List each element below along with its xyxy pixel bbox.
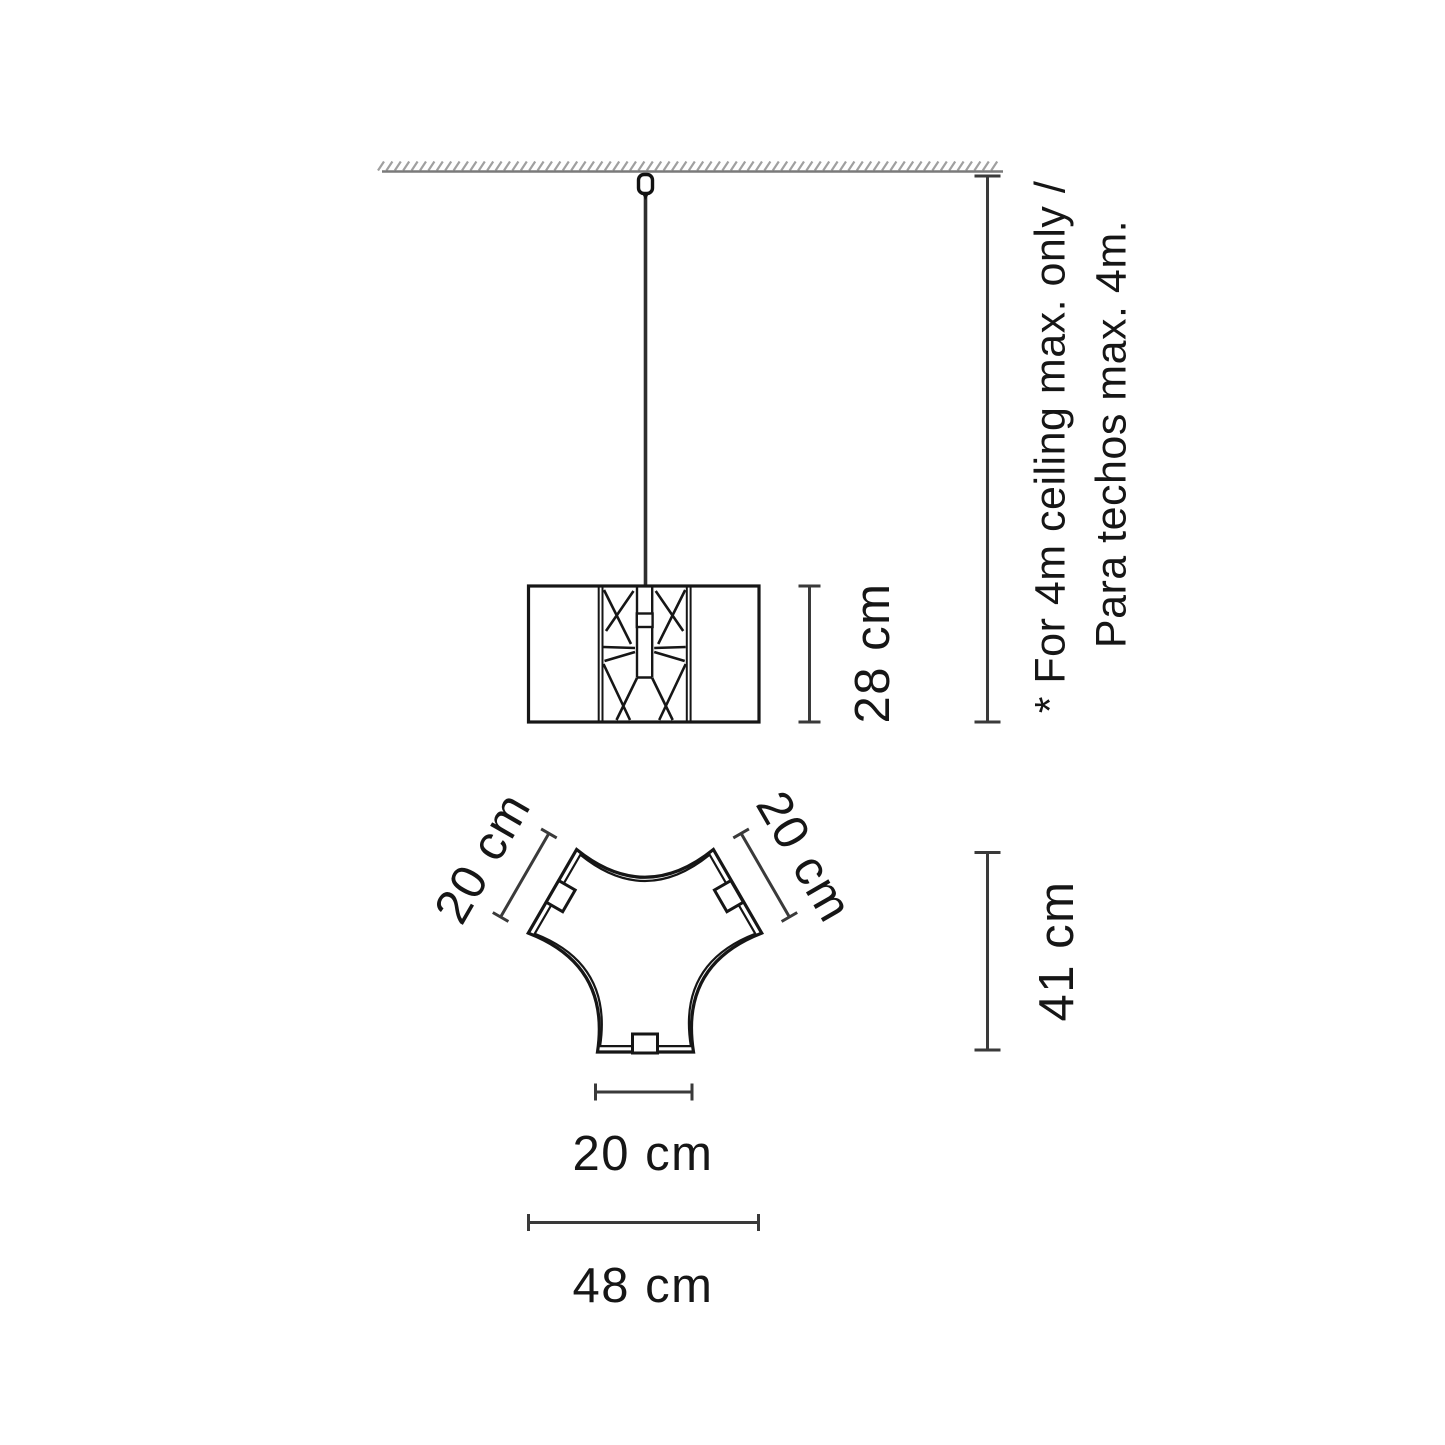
drawing-canvas xyxy=(0,0,1445,1445)
dim-label-top-view-height: 41 cm xyxy=(1029,881,1085,1022)
ceiling-canopy xyxy=(639,175,653,194)
dim-line-overall-width-48 xyxy=(529,1214,759,1231)
dim-line-top-view-height-41 xyxy=(975,853,1001,1051)
dim-line-ceiling-drop xyxy=(975,176,1001,722)
dim-line-shade-height-28 xyxy=(799,586,821,722)
suspension xyxy=(639,175,653,589)
dim-line-bottom-edge-20 xyxy=(596,1084,693,1101)
canopy-tip xyxy=(642,193,650,201)
ceiling-note-line2: Para techos max. 4m. xyxy=(1088,220,1137,648)
ceiling-hatch xyxy=(378,162,997,171)
dim-label-shade-height: 28 cm xyxy=(845,583,901,724)
shade-top-view xyxy=(528,850,761,1054)
dimension-drawing: * For 4m ceiling max. only / Para techos… xyxy=(0,0,1445,1445)
top-view-tab-bottom xyxy=(633,1034,658,1053)
ceiling xyxy=(378,162,1003,172)
shade-body xyxy=(529,586,760,722)
dim-label-bottom-edge: 20 cm xyxy=(573,1126,714,1182)
lamp-socket xyxy=(637,614,653,628)
dim-label-overall-width: 48 cm xyxy=(573,1258,714,1314)
ceiling-note-line1: * For 4m ceiling max. only / xyxy=(1027,181,1076,714)
shade-side-view xyxy=(529,586,760,722)
